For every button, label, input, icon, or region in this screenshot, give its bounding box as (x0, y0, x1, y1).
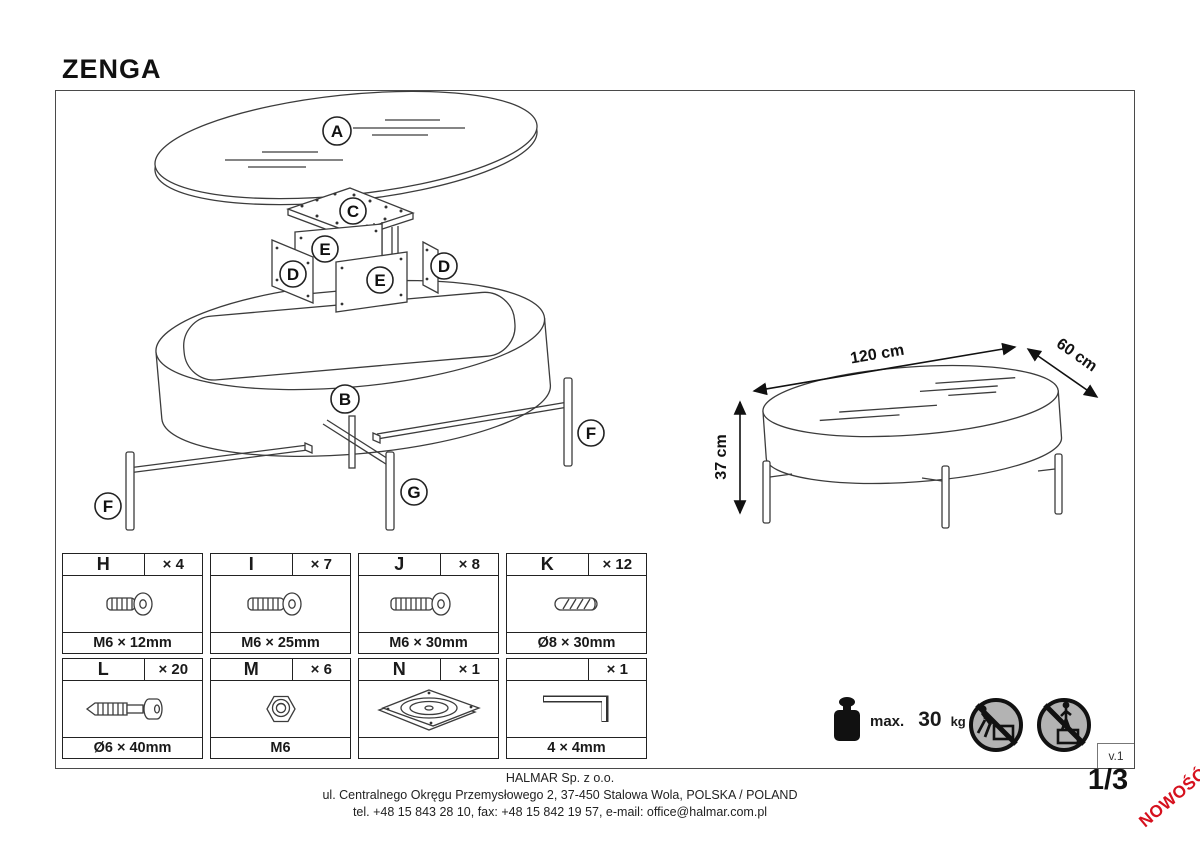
hardware-caption: M6 × 25mm (211, 632, 350, 653)
hardware-letter: L (63, 659, 145, 680)
svg-text:D: D (438, 257, 450, 276)
svg-text:60 cm: 60 cm (1053, 335, 1100, 375)
hex-nut-icon (215, 682, 347, 736)
allen-key-icon (511, 682, 643, 736)
no-pushing-icon (967, 696, 1025, 754)
hardware-caption: 4 × 4mm (507, 737, 646, 758)
exploded-view-diagram: A C E D E D B F F G (55, 90, 695, 560)
hardware-count: × 12 (589, 554, 646, 575)
svg-text:B: B (339, 390, 351, 409)
hardware-caption: M6 (211, 737, 350, 758)
hardware-cell-k: K × 12 Ø8 × 30mm (506, 553, 647, 654)
part-label-a: A (323, 117, 351, 145)
no-standing-icon (1035, 696, 1093, 754)
hardware-cell-j: J × 8 M6 × 30mm (358, 553, 499, 654)
hardware-caption: M6 × 12mm (63, 632, 202, 653)
hardware-caption: Ø6 × 40mm (63, 737, 202, 758)
load-limit-unit: kg (951, 714, 966, 729)
svg-text:G: G (407, 483, 420, 502)
svg-text:C: C (347, 202, 359, 221)
load-limit: max. 30 kg (830, 697, 966, 743)
weight-icon (830, 697, 864, 743)
instruction-sheet: { "page": { "title": "ZENGA", "version":… (0, 0, 1200, 848)
svg-text:E: E (319, 240, 330, 259)
part-g-leg-center (386, 452, 394, 530)
hardware-count: × 4 (145, 554, 202, 575)
hardware-caption (359, 737, 498, 758)
hardware-cell-h: H × 4 M6 × 12mm (62, 553, 203, 654)
hardware-letter (507, 659, 589, 680)
hardware-count: × 6 (293, 659, 350, 680)
svg-text:E: E (374, 271, 385, 290)
load-limit-label: max. (870, 713, 904, 730)
hardware-letter: J (359, 554, 441, 575)
hardware-cell-i: I × 7 M6 × 25mm (210, 553, 351, 654)
hardware-table: H × 4 M6 × 12mm I × 7 M6 × 25mm J × 8 M6… (62, 553, 647, 759)
hardware-count: × 1 (589, 659, 646, 680)
part-label-f-right: F (578, 420, 604, 446)
part-label-c: C (340, 198, 366, 224)
hardware-count: × 7 (293, 554, 350, 575)
footer-company: HALMAR Sp. z o.o. (55, 770, 1065, 787)
hardware-cell-n: N × 1 (358, 658, 499, 759)
svg-text:120 cm: 120 cm (849, 342, 905, 368)
svg-text:A: A (331, 122, 343, 141)
load-limit-value: 30 (918, 708, 941, 732)
hardware-count: × 1 (441, 659, 498, 680)
footer: HALMAR Sp. z o.o. ul. Centralnego Okręgu… (55, 770, 1065, 821)
wooden-dowel-icon (511, 577, 643, 631)
hardware-count: × 20 (145, 659, 202, 680)
part-f-leg-right (564, 378, 572, 466)
part-label-d-right: D (431, 253, 457, 279)
footer-address: ul. Centralnego Okręgu Przemysłowego 2, … (55, 787, 1065, 804)
svg-text:D: D (287, 265, 299, 284)
machine-screw-long-icon (363, 577, 495, 631)
part-label-d-left: D (280, 261, 306, 287)
hardware-letter: M (211, 659, 293, 680)
hardware-count: × 8 (441, 554, 498, 575)
part-label-f-left: F (95, 493, 121, 519)
part-label-e-back: E (312, 236, 338, 262)
version-label: v.1 (1108, 749, 1123, 763)
machine-screw-medium-icon (215, 577, 347, 631)
table-outline (761, 357, 1064, 492)
hardware-caption: M6 × 30mm (359, 632, 498, 653)
hardware-cell-m: M × 6 M6 (210, 658, 351, 759)
part-f-leg-left (126, 452, 134, 530)
hardware-letter: I (211, 554, 293, 575)
svg-text:37 cm: 37 cm (713, 434, 730, 479)
hardware-cell-l: L × 20 Ø6 × 40mm (62, 658, 203, 759)
safety-pictograms (967, 696, 1093, 754)
swivel-plate-icon (363, 682, 495, 736)
part-label-b: B (331, 385, 359, 413)
hardware-cell-allen: × 1 4 × 4mm (506, 658, 647, 759)
machine-screw-short-icon (67, 577, 199, 631)
confirmat-screw-icon (67, 682, 199, 736)
part-label-e-front: E (367, 267, 393, 293)
hardware-caption: Ø8 × 30mm (507, 632, 646, 653)
page-number: 1/3 (1078, 764, 1138, 797)
hardware-letter: K (507, 554, 589, 575)
part-label-g: G (401, 479, 427, 505)
footer-contact: tel. +48 15 843 28 10, fax: +48 15 842 1… (55, 804, 1065, 821)
svg-text:F: F (103, 497, 113, 516)
svg-text:F: F (586, 424, 596, 443)
dimension-height: 37 cm (713, 402, 740, 513)
hardware-letter: N (359, 659, 441, 680)
page-title: ZENGA (62, 54, 162, 85)
dimension-diagram: 37 cm 120 cm 60 cm (700, 325, 1130, 550)
hardware-letter: H (63, 554, 145, 575)
